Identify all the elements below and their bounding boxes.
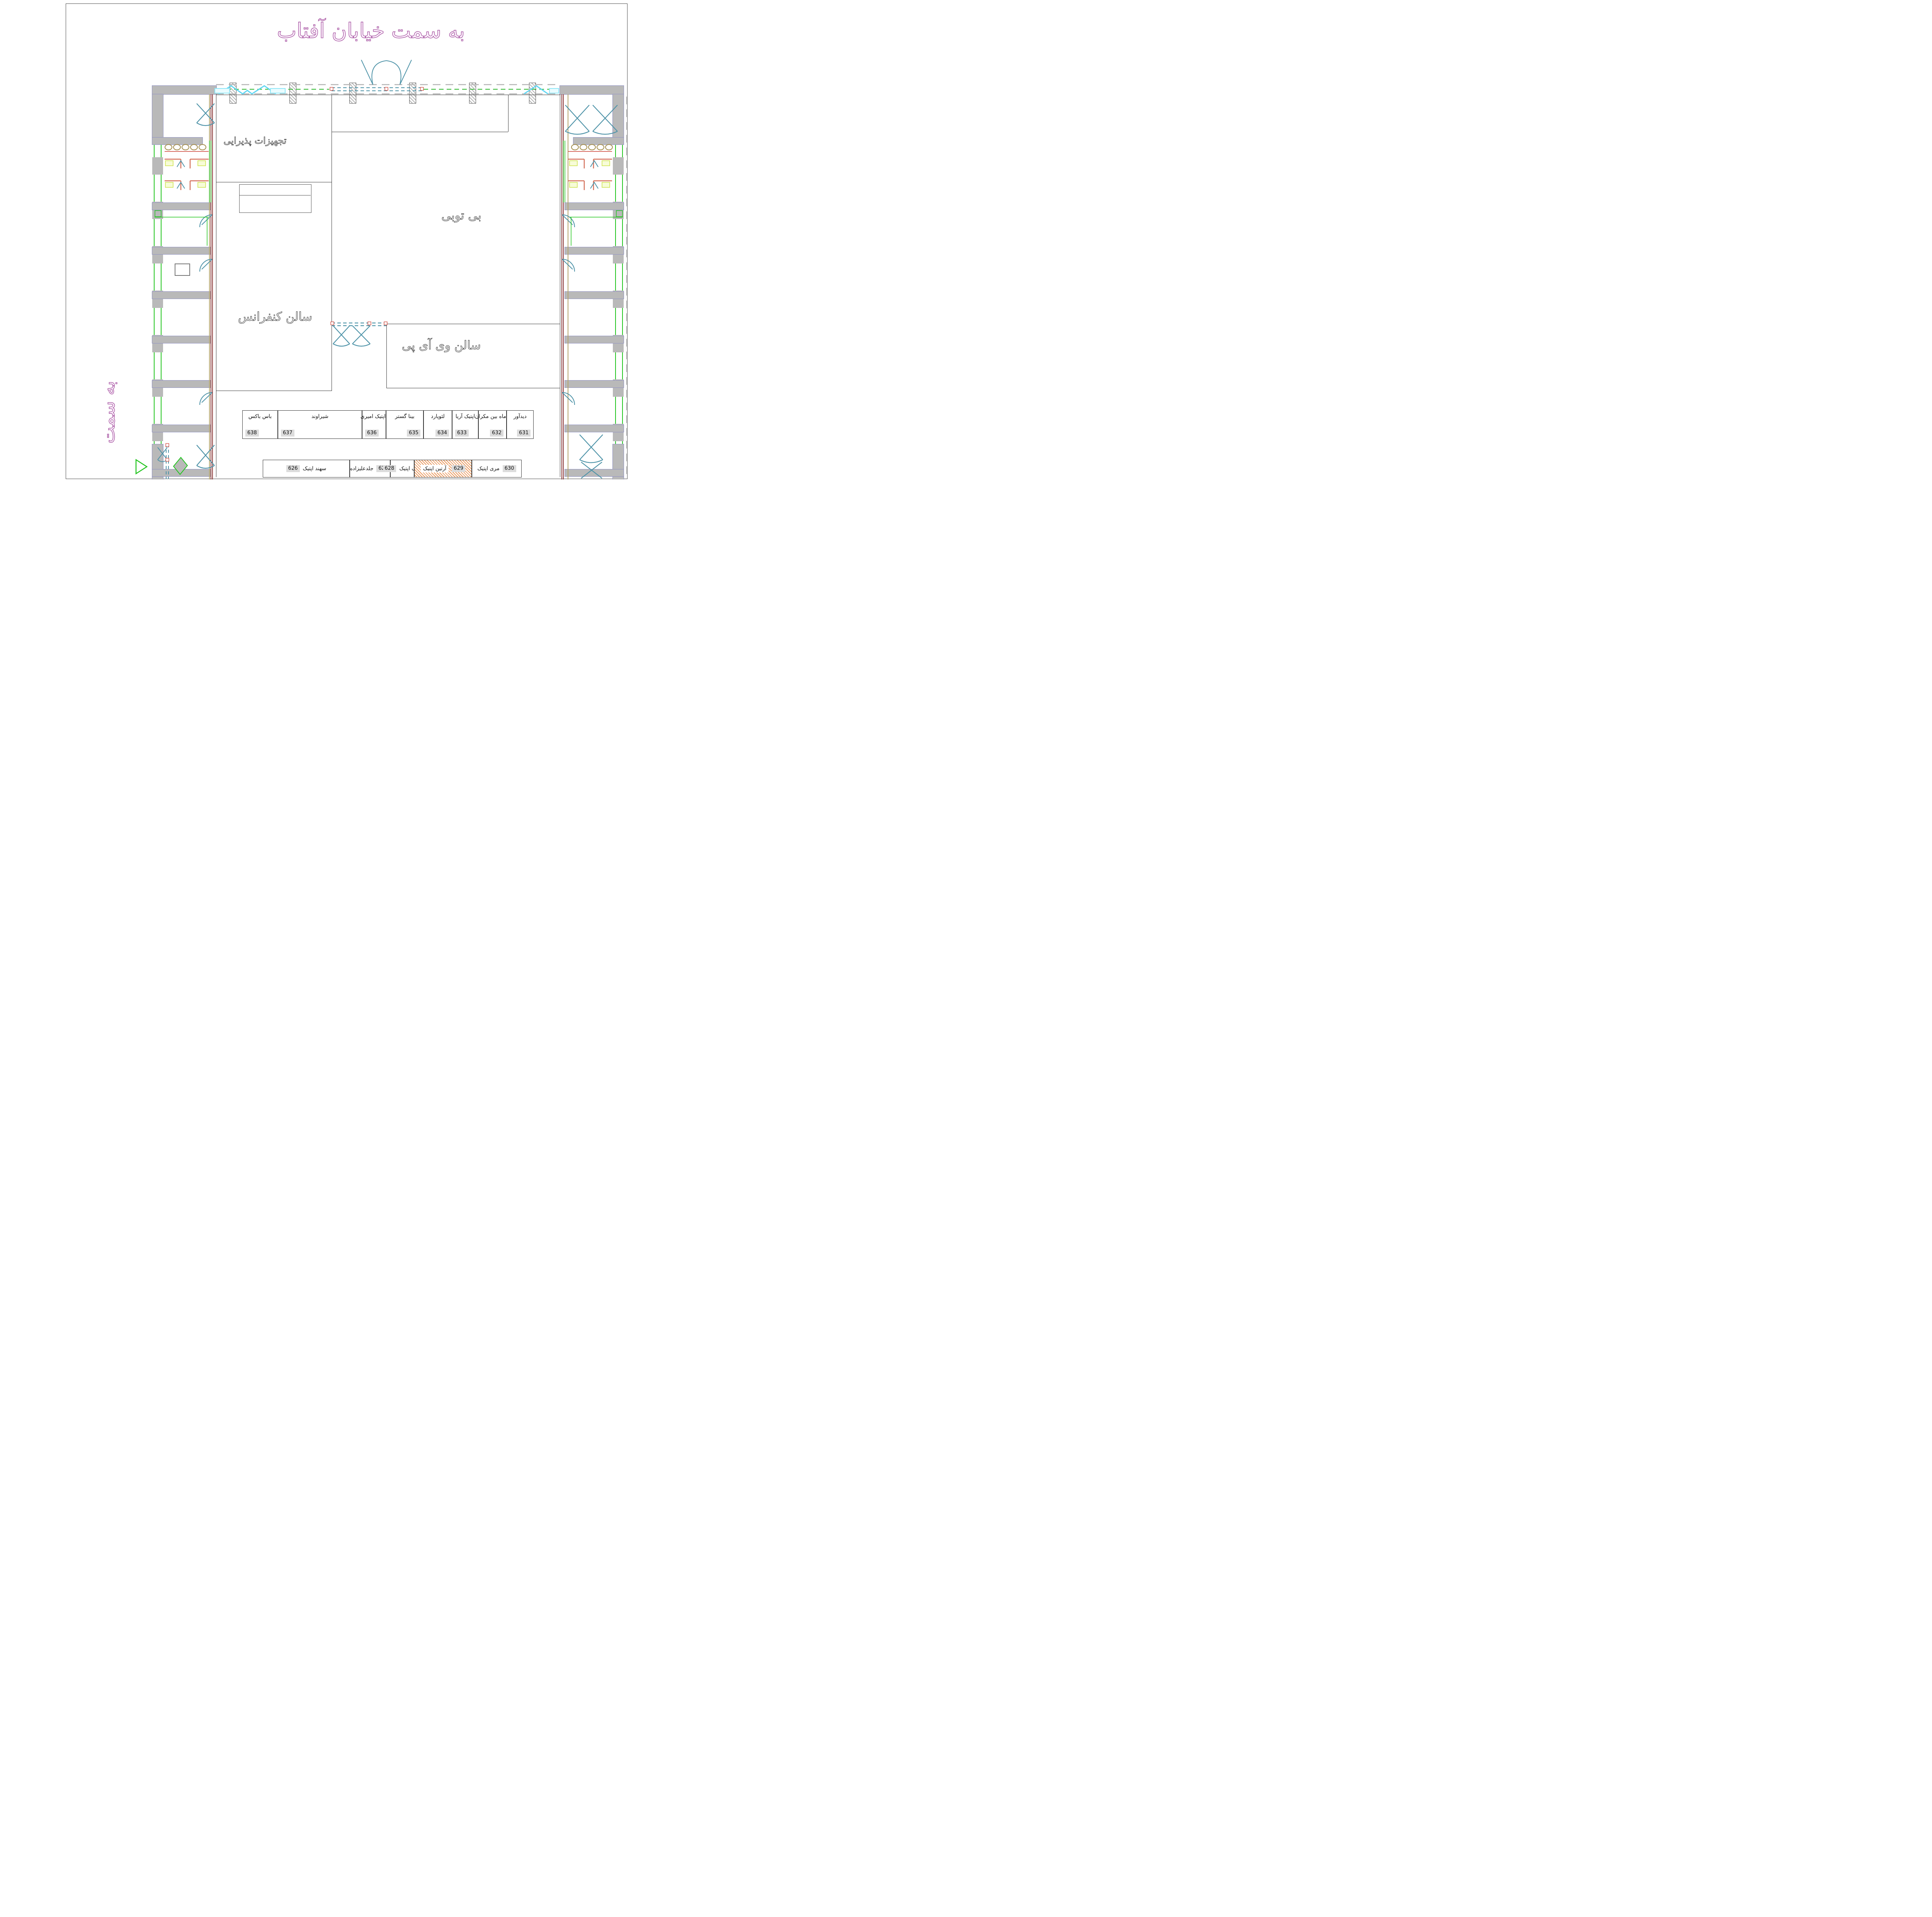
shop-row-top: باس باکس 638 شیراوند 637 اپتیک امیری 636… — [242, 410, 534, 439]
vip-north-wall — [386, 324, 560, 324]
equipment-box — [175, 263, 190, 276]
left-toilet-top-wall — [152, 138, 202, 144]
shop-unit-638: باس باکس 638 — [242, 410, 278, 439]
vip-west-wall — [386, 324, 387, 388]
street-title: به سمت خیابان آفتاب — [240, 19, 502, 43]
room-label-btb: بی توبی — [423, 209, 500, 223]
left-room-band-1 — [152, 203, 211, 210]
serving-counter-shelf-line — [239, 195, 311, 195]
shop-name: سهند اپتیک — [303, 466, 327, 472]
room-label-conference: سالن کنفرانس — [225, 310, 325, 324]
catering-conference-east-wall — [332, 95, 332, 391]
unit-number-badge: 629 — [452, 465, 465, 472]
left-room-band-4 — [152, 336, 211, 343]
conference-south-wall — [216, 391, 332, 391]
shop-name: اپتیک امیری — [362, 413, 386, 420]
shop-row-bottom: 626 سهند اپتیک 627 جلدعلیزاده 628 اریک ا… — [263, 460, 522, 478]
shop-name: لئوپارد — [424, 413, 452, 420]
left-exterior-wall — [152, 86, 163, 479]
north-strip-east-wall — [508, 95, 509, 132]
right-room-band-2 — [565, 247, 624, 254]
shop-unit-629-highlighted: 629 آرتین اپتیک — [414, 460, 472, 478]
left-corridor-tan-line — [209, 94, 210, 479]
right-room-band-3 — [565, 292, 624, 299]
left-room-band-6 — [152, 425, 211, 432]
right-exterior-wall — [613, 86, 624, 479]
shop-name: اپتیک آریا — [452, 413, 478, 420]
facade-column-6 — [529, 83, 536, 104]
right-room-band-1 — [565, 203, 624, 210]
right-corridor-tan-line — [568, 94, 568, 479]
shop-unit-635: بینا گستر 635 — [386, 410, 423, 439]
side-street-label: به سمت — [98, 362, 119, 462]
shop-unit-633: اپتیک آریا 633 — [452, 410, 478, 439]
facade-column-3 — [349, 83, 356, 104]
shop-unit-628: 628 اریک اپتیک — [390, 460, 414, 478]
unit-number-badge: 635 — [407, 430, 420, 437]
right-wing-top-wall — [560, 86, 624, 94]
shop-name: آرتین اپتیک — [421, 465, 449, 472]
facade-column-5 — [469, 83, 476, 104]
unit-number-badge: 638 — [245, 430, 259, 437]
shop-name: مری اپتیک — [477, 466, 499, 472]
right-room-band-7 — [565, 469, 624, 476]
room-label-catering: تجهیزات پذیرایی — [216, 135, 294, 146]
right-room-band-5 — [565, 381, 624, 387]
facade-column-1 — [230, 83, 236, 104]
sheet-border — [66, 3, 628, 479]
unit-number-badge: 634 — [435, 430, 449, 437]
north-strip-south-wall — [332, 132, 508, 132]
serving-counter — [239, 184, 311, 213]
left-room-band-5 — [152, 381, 211, 387]
shop-name: باس باکس — [243, 413, 277, 420]
vip-south-wall — [386, 388, 560, 388]
unit-number-badge: 631 — [517, 430, 531, 437]
shop-unit-637: شیراوند 637 — [278, 410, 362, 439]
unit-number-badge: 636 — [365, 430, 379, 437]
left-room-band-2 — [152, 247, 211, 254]
right-room-band-6 — [565, 425, 624, 432]
left-room-band-7 — [152, 469, 211, 476]
room-label-vip: سالن وی آی پی — [391, 338, 492, 352]
shop-name: شیراوند — [278, 413, 362, 420]
shop-unit-632: ماه بین مکران 632 — [478, 410, 507, 439]
center-west-wall — [216, 94, 216, 477]
right-toilet-top-wall — [573, 138, 624, 144]
shop-unit-636: اپتیک امیری 636 — [362, 410, 386, 439]
left-wing-top-wall — [152, 86, 216, 94]
left-wing-upper-pier — [152, 94, 163, 144]
unit-number-badge: 628 — [383, 465, 396, 472]
shop-name: جلدعلیزاده — [350, 466, 374, 472]
shop-name: دیدآور — [507, 413, 533, 420]
unit-number-badge: 637 — [281, 430, 294, 437]
facade-column-4 — [409, 83, 416, 104]
shop-name: بینا گستر — [386, 413, 423, 420]
right-room-band-4 — [565, 336, 624, 343]
shop-unit-626: 626 سهند اپتیک — [263, 460, 350, 478]
unit-number-badge: 626 — [286, 465, 300, 472]
right-corridor-wall-b — [563, 94, 564, 479]
right-corridor-wall-a — [561, 94, 562, 479]
left-corridor-wall-a — [211, 94, 211, 479]
facade-column-2 — [289, 83, 296, 104]
shop-unit-634: لئوپارد 634 — [423, 410, 452, 439]
shop-unit-630: 630 مری اپتیک — [472, 460, 522, 478]
shop-unit-631: دیدآور 631 — [507, 410, 534, 439]
right-wing-upper-pier — [613, 94, 624, 144]
unit-number-badge: 630 — [503, 465, 516, 472]
left-corridor-wall-b — [212, 94, 213, 479]
unit-number-badge: 632 — [490, 430, 503, 437]
unit-number-badge: 633 — [455, 430, 469, 437]
left-room-band-3 — [152, 292, 211, 299]
center-east-wall — [560, 94, 560, 477]
floor-plan-canvas: به سمت خیابان آفتاب به سمت — [0, 0, 678, 479]
shop-name: ماه بین مکران — [479, 413, 506, 420]
catering-south-wall — [216, 182, 332, 182]
